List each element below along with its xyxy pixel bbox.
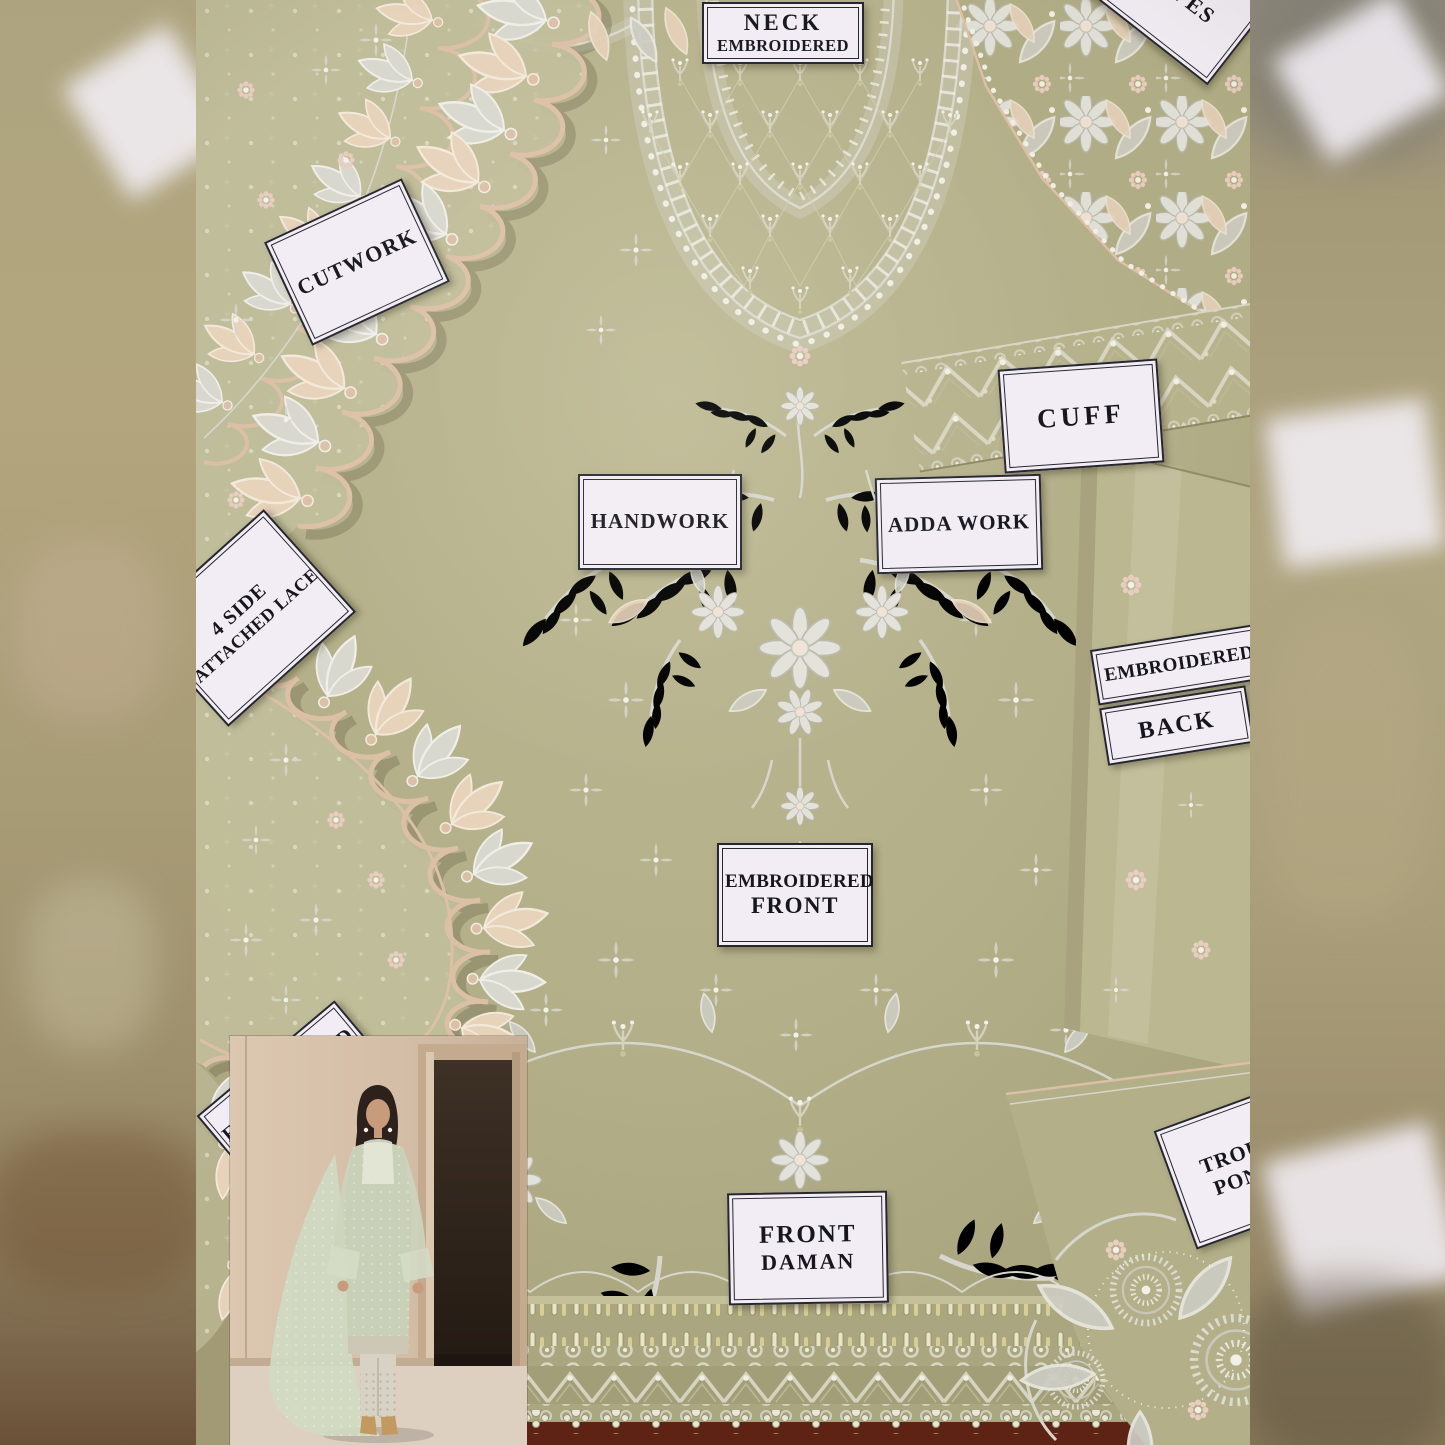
label-text: CUTWORK — [290, 222, 424, 302]
suit-flatlay-photo: .sil{stroke:var(--embroidery-silver,#d7d… — [196, 0, 1250, 1445]
label-text: NECK — [708, 10, 858, 36]
label-cuff: CUFF — [998, 359, 1165, 474]
blurred-backdrop-right — [1250, 0, 1445, 1445]
blurred-label-ghost — [62, 24, 196, 201]
inset-model-photo — [230, 1036, 527, 1445]
label-text: DAMAN — [736, 1249, 880, 1276]
blurred-backdrop-left — [0, 0, 196, 1445]
label-text: ADDA WORK — [884, 510, 1035, 537]
label-front-daman: FRONT DAMAN — [727, 1191, 889, 1306]
blur-blob — [0, 1130, 196, 1290]
blur-blob — [14, 540, 164, 720]
label-text: CUFF — [1008, 396, 1154, 436]
label-text: FRONT — [725, 893, 865, 919]
blur-blob — [1260, 620, 1430, 920]
label-text: FRONT — [736, 1220, 880, 1251]
label-text: EMBROIDERED — [725, 871, 865, 892]
doorway — [418, 1044, 527, 1370]
label-adda-work: ADDA WORK — [875, 474, 1043, 574]
earring — [388, 1128, 392, 1132]
model-yoke — [362, 1139, 394, 1184]
label-text: HANDWORK — [586, 510, 734, 534]
label-neck-embroidered: NECK EMBROIDERED — [702, 2, 864, 64]
label-text: EMBROIDERED — [1101, 642, 1250, 687]
model-heel — [381, 1416, 398, 1435]
blur-blob — [26, 880, 156, 1050]
blurred-label-ghost — [1264, 397, 1445, 568]
blur-blob — [1250, 1280, 1445, 1445]
product-photo-canvas: .sil{stroke:var(--embroidery-silver,#d7d… — [0, 0, 1445, 1445]
model-scene — [230, 1036, 527, 1445]
label-text: EMBROIDERED — [708, 37, 858, 55]
label-text: BACK — [1109, 702, 1244, 749]
earring — [364, 1128, 368, 1132]
model-heel — [360, 1416, 377, 1435]
back-piece — [1064, 446, 1250, 1072]
model-face — [366, 1099, 390, 1129]
label-embroidered-front: EMBROIDERED FRONT — [717, 843, 873, 947]
label-handwork: HANDWORK — [578, 474, 742, 570]
